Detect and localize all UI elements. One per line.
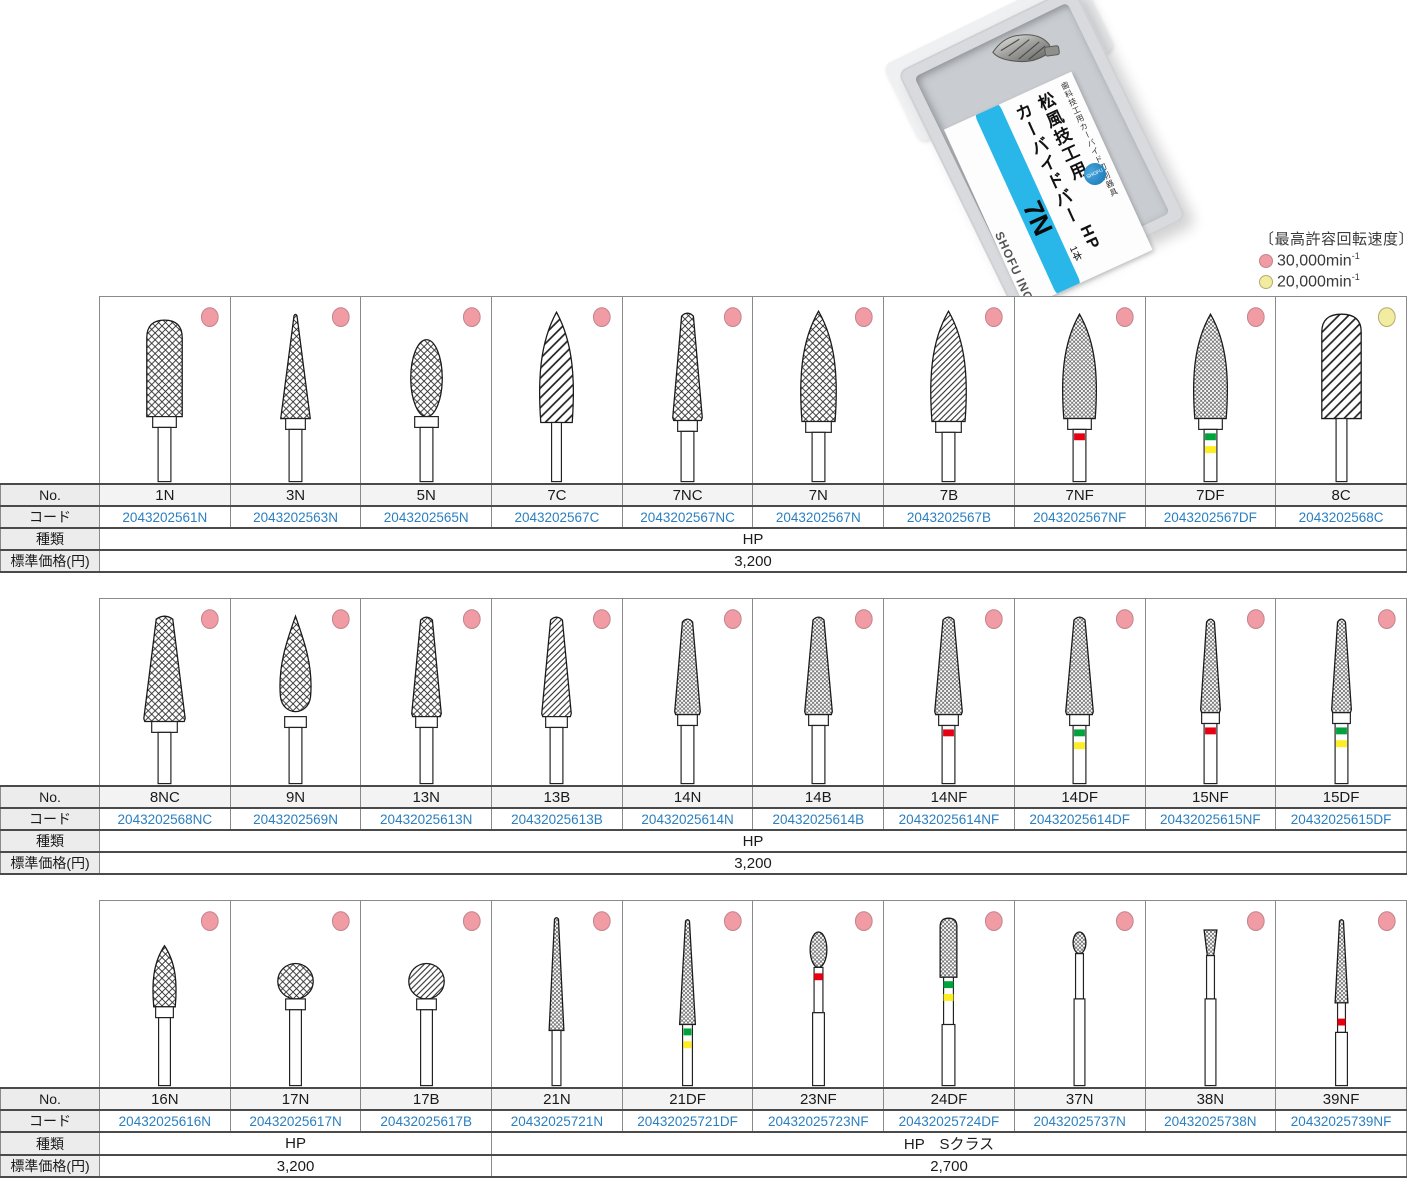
speed-legend: 〔最高許容回転速度〕 30,000min-1 20,000min-1 bbox=[1259, 228, 1414, 291]
product-no: 7B bbox=[884, 484, 1015, 506]
catalog-page: 歯科技工用カーバイド切削器具 松風技工用 カーバイドバー 7N HP 1本 SH… bbox=[0, 0, 1416, 1185]
bur-illustration bbox=[1277, 901, 1406, 1087]
color-band-yellow bbox=[1205, 446, 1216, 453]
speed-dot-pink bbox=[725, 912, 742, 931]
price-value: 3,200 bbox=[100, 550, 1407, 572]
product-code: 20432025724DF bbox=[884, 1110, 1015, 1132]
bur-image-cell-13N bbox=[361, 599, 492, 787]
speed-dot-pink bbox=[202, 610, 219, 629]
price-value: 3,200 bbox=[100, 1155, 492, 1177]
bur-illustration bbox=[362, 297, 491, 483]
bur-image-cell-7N bbox=[753, 297, 884, 485]
product-code: 2043202568C bbox=[1276, 506, 1407, 528]
color-band-green bbox=[1205, 433, 1216, 440]
bur-image-cell-7B bbox=[884, 297, 1015, 485]
kind-value: HP bbox=[100, 830, 1407, 852]
color-band-yellow bbox=[944, 994, 954, 1001]
product-no: 39NF bbox=[1276, 1088, 1407, 1110]
product-no: 24DF bbox=[884, 1088, 1015, 1110]
product-no: 3N bbox=[230, 484, 361, 506]
speed-dot-pink bbox=[1247, 912, 1264, 931]
product-no: 21N bbox=[492, 1088, 623, 1110]
package-box: 歯科技工用カーバイド切削器具 松風技工用 カーバイドバー 7N HP 1本 SH… bbox=[897, 0, 1186, 304]
product-code: 20432025617B bbox=[361, 1110, 492, 1132]
color-band-green bbox=[684, 1028, 692, 1035]
color-band-red bbox=[1074, 433, 1085, 440]
bur-illustration bbox=[1015, 297, 1144, 483]
product-no: 7N bbox=[753, 484, 884, 506]
bur-illustration bbox=[100, 297, 229, 483]
speed-dot-pink bbox=[463, 610, 480, 629]
bur-image-cell-8NC bbox=[100, 599, 231, 787]
speed-dot-yellow bbox=[1378, 308, 1395, 327]
product-no: 14NF bbox=[884, 786, 1015, 808]
product-no: 37N bbox=[1014, 1088, 1145, 1110]
row-label-no: No. bbox=[1, 786, 100, 808]
bur-illustration bbox=[754, 599, 883, 785]
bur-image-cell-23NF bbox=[753, 901, 884, 1089]
price-value: 2,700 bbox=[492, 1155, 1407, 1177]
product-code: 20432025723NF bbox=[753, 1110, 884, 1132]
bur-illustration bbox=[492, 901, 621, 1087]
product-no: 15DF bbox=[1276, 786, 1407, 808]
row-label-code: コード bbox=[1, 808, 100, 830]
product-no: 14N bbox=[622, 786, 753, 808]
kind-row: 種類HP bbox=[1, 528, 1407, 550]
bur-image-cell-15NF bbox=[1145, 599, 1276, 787]
speed-dot-pink bbox=[332, 912, 349, 931]
speed-dot-pink bbox=[463, 308, 480, 327]
speed-dot-pink bbox=[463, 912, 480, 931]
hero-section: 歯科技工用カーバイド切削器具 松風技工用 カーバイドバー 7N HP 1本 SH… bbox=[0, 0, 1416, 296]
bur-illustration bbox=[492, 297, 621, 483]
row-label-kind: 種類 bbox=[1, 528, 100, 550]
product-code: 2043202567C bbox=[492, 506, 623, 528]
speed-dot-pink bbox=[725, 610, 742, 629]
product-code: 20432025615DF bbox=[1276, 808, 1407, 830]
price-row: 標準価格(円)3,200 bbox=[1, 550, 1407, 572]
yellow-speed-dot-icon bbox=[1259, 275, 1273, 289]
legend-label: 30,000min-1 bbox=[1277, 251, 1360, 270]
product-code: 20432025738N bbox=[1145, 1110, 1276, 1132]
speed-dot-pink bbox=[986, 610, 1003, 629]
product-no: 5N bbox=[361, 484, 492, 506]
bur-image-cell-14N bbox=[622, 599, 753, 787]
speed-dot-pink bbox=[594, 308, 611, 327]
product-no: 13B bbox=[492, 786, 623, 808]
speed-dot-pink bbox=[855, 912, 872, 931]
product-code: 2043202568NC bbox=[100, 808, 231, 830]
product-code: 2043202563N bbox=[230, 506, 361, 528]
bur-image-cell-7NC bbox=[622, 297, 753, 485]
bur-image-cell-38N bbox=[1145, 901, 1276, 1089]
speed-dot-pink bbox=[855, 610, 872, 629]
product-no: 21DF bbox=[622, 1088, 753, 1110]
legend-item-30000: 30,000min-1 bbox=[1259, 251, 1414, 270]
product-code: 2043202567B bbox=[884, 506, 1015, 528]
no-row: No.1N3N5N7C7NC7N7B7NF7DF8C bbox=[1, 484, 1407, 506]
color-band-yellow bbox=[1074, 742, 1085, 749]
row-label-kind: 種類 bbox=[1, 830, 100, 852]
kind-row: 種類HP bbox=[1, 830, 1407, 852]
kind-value: HP bbox=[100, 1132, 492, 1155]
product-code: 20432025614N bbox=[622, 808, 753, 830]
product-code: 20432025739NF bbox=[1276, 1110, 1407, 1132]
speed-dot-pink bbox=[855, 308, 872, 327]
bur-illustration bbox=[1146, 297, 1275, 483]
bur-image-row bbox=[1, 297, 1407, 485]
bur-illustration bbox=[231, 297, 360, 483]
bur-image-cell-7DF bbox=[1145, 297, 1276, 485]
bur-image-row bbox=[1, 599, 1407, 787]
speed-dot-pink bbox=[1247, 610, 1264, 629]
kind-value: HP Sクラス bbox=[492, 1132, 1407, 1155]
bur-illustration bbox=[1015, 599, 1144, 785]
bur-illustration bbox=[100, 901, 229, 1087]
speed-dot-pink bbox=[986, 912, 1003, 931]
row-label-price: 標準価格(円) bbox=[1, 852, 100, 874]
color-band-red bbox=[1337, 1019, 1345, 1026]
product-code: 20432025614DF bbox=[1014, 808, 1145, 830]
product-no: 7NF bbox=[1014, 484, 1145, 506]
product-no: 1N bbox=[100, 484, 231, 506]
no-row: No.8NC9N13N13B14N14B14NF14DF15NF15DF bbox=[1, 786, 1407, 808]
speed-dot-pink bbox=[202, 912, 219, 931]
bur-illustration bbox=[1277, 297, 1406, 483]
product-code: 20432025613N bbox=[361, 808, 492, 830]
color-band-yellow bbox=[684, 1041, 692, 1048]
color-band-red bbox=[814, 973, 823, 980]
bur-image-cell-7C bbox=[492, 297, 623, 485]
bur-image-cell-3N bbox=[230, 297, 361, 485]
speed-dot-pink bbox=[332, 610, 349, 629]
bur-illustration bbox=[884, 297, 1013, 483]
legend-item-20000: 20,000min-1 bbox=[1259, 272, 1414, 291]
bur-in-box-icon bbox=[988, 26, 1064, 75]
bur-illustration bbox=[1146, 599, 1275, 785]
product-no: 7C bbox=[492, 484, 623, 506]
product-code: 2043202565N bbox=[361, 506, 492, 528]
product-no: 15NF bbox=[1145, 786, 1276, 808]
color-band-green bbox=[1336, 727, 1347, 734]
product-no: 9N bbox=[230, 786, 361, 808]
bur-illustration bbox=[754, 297, 883, 483]
row-label-no: No. bbox=[1, 484, 100, 506]
product-no: 8C bbox=[1276, 484, 1407, 506]
bur-illustration bbox=[1146, 901, 1275, 1087]
bur-illustration bbox=[362, 599, 491, 785]
speed-dot-pink bbox=[1247, 308, 1264, 327]
price-value: 3,200 bbox=[100, 852, 1407, 874]
kind-value: HP bbox=[100, 528, 1407, 550]
speed-dot-pink bbox=[725, 308, 742, 327]
bur-image-cell-39NF bbox=[1276, 901, 1407, 1089]
product-code: 20432025721N bbox=[492, 1110, 623, 1132]
color-band-yellow bbox=[1336, 740, 1347, 747]
row-label-price: 標準価格(円) bbox=[1, 1155, 100, 1177]
bur-image-cell-5N bbox=[361, 297, 492, 485]
color-band-red bbox=[1205, 727, 1216, 734]
bur-illustration bbox=[884, 901, 1013, 1087]
product-no: 14DF bbox=[1014, 786, 1145, 808]
bur-image-cell-24DF bbox=[884, 901, 1015, 1089]
product-code: 2043202567DF bbox=[1145, 506, 1276, 528]
product-code: 20432025615NF bbox=[1145, 808, 1276, 830]
bur-illustration bbox=[100, 599, 229, 785]
bur-image-row bbox=[1, 901, 1407, 1089]
product-no: 7DF bbox=[1145, 484, 1276, 506]
product-table-1: No.1N3N5N7C7NC7N7B7NF7DF8Cコード2043202561N… bbox=[0, 296, 1407, 573]
product-no: 13N bbox=[361, 786, 492, 808]
product-no: 38N bbox=[1145, 1088, 1276, 1110]
pink-speed-dot-icon bbox=[1259, 254, 1273, 268]
kind-row: 種類HPHP Sクラス bbox=[1, 1132, 1407, 1155]
bur-image-cell-15DF bbox=[1276, 599, 1407, 787]
code-row: コード2043202561N2043202563N2043202565N2043… bbox=[1, 506, 1407, 528]
code-row: コード2043202568NC2043202569N20432025613N20… bbox=[1, 808, 1407, 830]
product-code: 20432025613B bbox=[492, 808, 623, 830]
bur-image-cell-17B bbox=[361, 901, 492, 1089]
bur-illustration bbox=[623, 599, 752, 785]
price-row: 標準価格(円)3,2002,700 bbox=[1, 1155, 1407, 1177]
bur-illustration bbox=[884, 599, 1013, 785]
product-code: 20432025737N bbox=[1014, 1110, 1145, 1132]
row-label-kind: 種類 bbox=[1, 1132, 100, 1155]
speed-dot-pink bbox=[986, 308, 1003, 327]
product-code: 20432025617N bbox=[230, 1110, 361, 1132]
color-band-red bbox=[944, 729, 955, 736]
product-code: 20432025614NF bbox=[884, 808, 1015, 830]
row-label-price: 標準価格(円) bbox=[1, 550, 100, 572]
product-no: 23NF bbox=[753, 1088, 884, 1110]
color-band-green bbox=[1074, 729, 1085, 736]
price-row: 標準価格(円)3,200 bbox=[1, 852, 1407, 874]
bur-illustration bbox=[623, 901, 752, 1087]
speed-dot-pink bbox=[1378, 912, 1395, 931]
product-no: 17B bbox=[361, 1088, 492, 1110]
bur-illustration bbox=[362, 901, 491, 1087]
product-code: 20432025721DF bbox=[622, 1110, 753, 1132]
bur-illustration bbox=[492, 599, 621, 785]
color-band-green bbox=[944, 981, 954, 988]
bur-image-cell-14B bbox=[753, 599, 884, 787]
row-label-code: コード bbox=[1, 1110, 100, 1132]
bur-image-cell-14DF bbox=[1014, 599, 1145, 787]
table-spacer bbox=[1, 901, 100, 1089]
bur-image-cell-1N bbox=[100, 297, 231, 485]
table-spacer bbox=[1, 297, 100, 485]
speed-dot-pink bbox=[1117, 610, 1134, 629]
product-no: 7NC bbox=[622, 484, 753, 506]
code-row: コード20432025616N20432025617N20432025617B2… bbox=[1, 1110, 1407, 1132]
bur-illustration bbox=[754, 901, 883, 1087]
bur-image-cell-21N bbox=[492, 901, 623, 1089]
speed-dot-pink bbox=[594, 912, 611, 931]
legend-label: 20,000min-1 bbox=[1277, 272, 1360, 291]
bur-image-cell-7NF bbox=[1014, 297, 1145, 485]
row-label-no: No. bbox=[1, 1088, 100, 1110]
product-table-2: No.8NC9N13N13B14N14B14NF14DF15NF15DFコード2… bbox=[0, 598, 1407, 875]
product-code: 2043202567NF bbox=[1014, 506, 1145, 528]
product-no: 17N bbox=[230, 1088, 361, 1110]
product-code: 2043202569N bbox=[230, 808, 361, 830]
bur-illustration bbox=[231, 599, 360, 785]
product-code: 2043202567NC bbox=[622, 506, 753, 528]
bur-image-cell-8C bbox=[1276, 297, 1407, 485]
speed-dot-pink bbox=[594, 610, 611, 629]
product-code: 20432025616N bbox=[100, 1110, 231, 1132]
speed-dot-pink bbox=[1378, 610, 1395, 629]
product-no: 16N bbox=[100, 1088, 231, 1110]
no-row: No.16N17N17B21N21DF23NF24DF37N38N39NF bbox=[1, 1088, 1407, 1110]
speed-dot-pink bbox=[1117, 308, 1134, 327]
bur-image-cell-21DF bbox=[622, 901, 753, 1089]
bur-image-cell-37N bbox=[1014, 901, 1145, 1089]
table-spacer bbox=[1, 599, 100, 787]
product-photo: 歯科技工用カーバイド切削器具 松風技工用 カーバイドバー 7N HP 1本 SH… bbox=[896, 2, 1218, 292]
bur-image-cell-9N bbox=[230, 599, 361, 787]
bur-illustration bbox=[1277, 599, 1406, 785]
bur-image-cell-14NF bbox=[884, 599, 1015, 787]
product-code: 2043202561N bbox=[100, 506, 231, 528]
product-no: 8NC bbox=[100, 786, 231, 808]
product-code: 20432025614B bbox=[753, 808, 884, 830]
product-code: 2043202567N bbox=[753, 506, 884, 528]
bur-image-cell-17N bbox=[230, 901, 361, 1089]
speed-dot-pink bbox=[332, 308, 349, 327]
product-no: 14B bbox=[753, 786, 884, 808]
speed-dot-pink bbox=[1117, 912, 1134, 931]
bur-illustration bbox=[231, 901, 360, 1087]
legend-title: 〔最高許容回転速度〕 bbox=[1259, 228, 1414, 249]
bur-illustration bbox=[1015, 901, 1144, 1087]
product-table-3: No.16N17N17B21N21DF23NF24DF37N38N39NFコード… bbox=[0, 900, 1407, 1178]
bur-illustration bbox=[623, 297, 752, 483]
speed-dot-pink bbox=[202, 308, 219, 327]
bur-image-cell-13B bbox=[492, 599, 623, 787]
row-label-code: コード bbox=[1, 506, 100, 528]
bur-image-cell-16N bbox=[100, 901, 231, 1089]
